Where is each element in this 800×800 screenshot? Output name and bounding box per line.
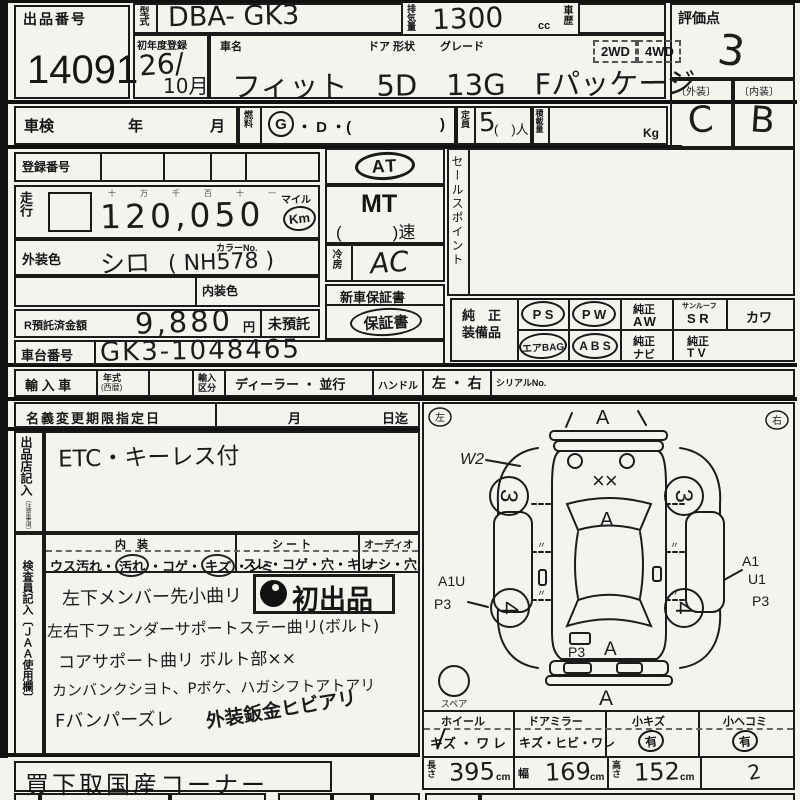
divider xyxy=(422,710,795,712)
chassis-label: 車台番号 xyxy=(21,345,73,364)
annotation-right-a1: A1 xyxy=(742,553,759,569)
divider xyxy=(224,369,226,397)
auction-sheet: 出品番号 14091 型式 DBA- GK3 排気量 1300 cc 車歴 評価… xyxy=(0,0,800,800)
model-code-label: 型式 xyxy=(137,6,147,26)
audio-condition-header: オーディオ xyxy=(364,536,413,551)
divider xyxy=(513,710,515,756)
divider xyxy=(474,106,476,145)
annotation-rear-p3: P3 xyxy=(568,644,585,660)
pw-circled: P W xyxy=(572,301,616,327)
separator xyxy=(8,397,797,401)
car-name-label: 車名 xyxy=(220,38,242,54)
inspector-note-line: Fバンパーズレ xyxy=(55,705,174,733)
first-registration-month: 10月 xyxy=(163,70,208,99)
ditto-mark: 〃 xyxy=(670,540,679,550)
mirror-damage-header: ドアミラー xyxy=(528,713,583,729)
ac-value: AC xyxy=(369,245,410,281)
spare-tire-label: スペア xyxy=(441,699,467,709)
small-dent-yes: 有 xyxy=(738,732,752,751)
divider xyxy=(422,369,424,397)
divider xyxy=(215,402,217,428)
divider xyxy=(726,298,728,329)
annotation-bottom-a: A xyxy=(599,687,613,710)
annotation-windshield-a: A xyxy=(600,509,614,531)
length-value: 395 xyxy=(449,757,496,787)
tv-label-2: T V xyxy=(687,346,706,360)
length-label: 長さ xyxy=(426,760,435,778)
annotation-left-a1u: A1U xyxy=(438,573,465,589)
partial-cell xyxy=(480,793,795,800)
auction-number: 14091 xyxy=(27,48,138,93)
capacity-label: 定員 xyxy=(460,110,469,128)
annotation-a-front: A xyxy=(596,407,610,429)
divider xyxy=(46,550,418,552)
auction-number-label: 出品番号 xyxy=(23,9,87,29)
divider xyxy=(568,298,570,362)
divider xyxy=(245,152,247,182)
name-change-until: 日迄 xyxy=(382,408,408,427)
divider xyxy=(372,369,374,397)
divider xyxy=(620,298,622,362)
color-no-value: ( NH578 ) xyxy=(168,248,275,277)
width-label: 幅 xyxy=(518,765,529,781)
sunroof-label: サンルーフ xyxy=(682,301,717,311)
shaken-year-label: 年 xyxy=(128,115,143,136)
inspector-label: 検査員記入〔ＪＡＡ使用欄〕 xyxy=(21,560,32,703)
airbag-label: エアBAG xyxy=(522,337,565,354)
serial-no-label: シリアルNo. xyxy=(496,376,546,389)
ditto-mark: 〃 xyxy=(537,540,546,550)
pw-label: P W xyxy=(582,307,606,322)
divider xyxy=(148,369,150,397)
interior-grade-label: 〔内装〕 xyxy=(739,83,779,98)
mile-unit-label: マイル xyxy=(281,191,311,206)
history-label: 車歴 xyxy=(561,5,571,25)
diagram-right-label: 右 xyxy=(772,414,782,427)
registration-label: 登録番号 xyxy=(22,158,70,175)
divider xyxy=(513,756,515,790)
divider xyxy=(192,369,194,397)
mt-label: MT xyxy=(361,190,397,219)
displacement-unit: cc xyxy=(538,20,550,32)
left-edge-bar xyxy=(0,0,8,758)
aw-label-2: AW xyxy=(633,314,658,329)
shaken-month-label: 月 xyxy=(210,115,225,136)
displacement-value: 1300 xyxy=(431,1,503,36)
annotation-rear-a: A xyxy=(604,639,617,660)
navi-label-2: ナビ xyxy=(633,346,655,362)
partial-cell xyxy=(425,793,480,800)
divider xyxy=(468,148,470,296)
sales-point-label: セールスポイント xyxy=(451,155,463,267)
small-scratch-header: 小キズ xyxy=(632,713,665,729)
annotation-right-p3: P3 xyxy=(752,593,769,609)
deposit-label: R預託済金額 xyxy=(24,317,87,333)
sr-label: S R xyxy=(687,311,709,326)
divider xyxy=(607,756,609,790)
annotation-w2: W2 xyxy=(460,451,484,468)
mileage-label: 走行 xyxy=(19,191,32,217)
width-value: 169 xyxy=(545,757,592,787)
sales-point-box xyxy=(447,148,795,296)
wheel-rear-left-grade: 4 xyxy=(496,601,523,614)
divider xyxy=(94,340,96,365)
chassis-value: GK3-1048465 xyxy=(100,334,301,368)
interior-color-label: 内装色 xyxy=(202,282,238,299)
partial-cell xyxy=(14,793,40,800)
abs-label: A B S xyxy=(579,339,611,353)
first-listing-stamp-text: 初出品 xyxy=(292,578,373,617)
inspector-note-line: コアサポート曲リ ボルト部×× xyxy=(58,644,296,673)
divider xyxy=(260,309,262,338)
4wd-label: 4WD xyxy=(645,44,674,59)
fuel-gasoline-circled: G xyxy=(268,111,294,137)
2wd-label: 2WD xyxy=(601,44,630,59)
ps-label: P S xyxy=(533,307,554,322)
height-label: 高さ xyxy=(611,760,620,778)
annotation-right-u1: U1 xyxy=(748,571,766,587)
exterior-color-label: 外装色 xyxy=(22,249,61,268)
load-unit: Kg xyxy=(643,126,659,140)
fuel-close-paren: ) xyxy=(440,116,445,133)
divider xyxy=(698,710,700,756)
diagram-left-label: 左 xyxy=(435,411,445,424)
deposit-yen: 円 xyxy=(243,318,255,335)
small-scratch-yes: 有 xyxy=(644,732,658,751)
divider xyxy=(210,152,212,182)
wheel-rear-right-grade: 4 xyxy=(670,601,697,614)
shaken-label: 車検 xyxy=(24,115,54,136)
name-change-month: 月 xyxy=(288,408,301,427)
width-unit: cm xyxy=(590,772,604,783)
seller-note-text: ETC・キーレス付 xyxy=(58,436,240,473)
divider xyxy=(490,369,492,397)
inspector-note-line: 左下メンバー先小曲リ xyxy=(62,581,242,610)
ditto-mark: 〃 xyxy=(670,588,679,598)
fuel-label: 燃料 xyxy=(243,110,252,128)
divider xyxy=(424,728,793,730)
import-year-label-2: (西暦) xyxy=(101,382,122,393)
fuel-gasoline: G xyxy=(275,116,287,133)
partial-cell xyxy=(332,793,372,800)
divider xyxy=(260,106,262,145)
cooling-label: 冷房 xyxy=(330,249,340,269)
dealer-parallel-label: ディーラー ・ 並行 xyxy=(235,374,345,393)
divider xyxy=(163,152,165,182)
seller-label: 出品店記入 xyxy=(20,436,32,496)
wheel-damage-header: ホイール xyxy=(441,713,485,729)
interior-color-box xyxy=(14,276,320,307)
ditto-mark: 〃 xyxy=(537,588,546,598)
divider xyxy=(548,106,550,145)
exterior-grade: C xyxy=(686,99,715,142)
ps-circled: P S xyxy=(521,301,565,327)
divider xyxy=(100,152,102,182)
door-shape-label: ドア 形状 xyxy=(368,38,415,54)
displacement-label: 排気量 xyxy=(406,4,415,31)
small-dent-header: 小ヘコミ xyxy=(723,713,767,729)
at-label: AT xyxy=(371,155,399,177)
divider xyxy=(700,756,702,790)
stamp-logo-dot xyxy=(272,584,279,591)
partial-cell xyxy=(278,793,332,800)
divider xyxy=(325,304,445,306)
score-label: 評価点 xyxy=(678,8,720,28)
partial-cell xyxy=(40,793,170,800)
divider xyxy=(96,369,98,397)
interior-grade: B xyxy=(749,99,777,142)
car-damage-diagram: 左 右 A W2 ×× A 3 3 4 4 A1U P3 A1 U1 P3 P3… xyxy=(424,404,793,710)
annotation-hood-xx: ×× xyxy=(592,468,618,493)
history-box xyxy=(578,3,666,34)
height-value: 152 xyxy=(634,757,681,787)
mileage-tens-box xyxy=(48,192,92,232)
name-change-label: 名義変更期限指定日 xyxy=(26,408,161,427)
divider xyxy=(672,298,674,362)
load-label: 積載量 xyxy=(535,109,543,133)
import-label: 輸 入 車 xyxy=(25,375,71,394)
wheel-front-right-grade: 3 xyxy=(669,488,697,504)
equipment-label-2: 装備品 xyxy=(462,322,501,341)
divider xyxy=(195,276,197,307)
handle-label: ハンドル xyxy=(378,377,418,392)
wheel-front-left-grade: 3 xyxy=(494,488,522,504)
divider xyxy=(351,244,353,282)
capacity-suffix: ( )人 xyxy=(494,119,529,138)
mt-speed-label: ( )速 xyxy=(336,218,415,243)
abs-circled: A B S xyxy=(572,333,618,359)
warranty-label: 保証書 xyxy=(363,310,409,333)
partial-cell xyxy=(170,793,266,800)
length-unit: cm xyxy=(496,772,510,783)
import-kubun-label-2: 区分 xyxy=(198,381,216,394)
grade-label: グレード xyxy=(440,38,484,54)
divider xyxy=(156,3,158,34)
kawa-label: カワ xyxy=(746,307,772,326)
not-deposited-label: 未預託 xyxy=(268,314,310,334)
mileage-value: 120,050 xyxy=(100,195,265,237)
model-code-value: DBA- GK3 xyxy=(168,0,300,33)
divider xyxy=(517,329,795,331)
mirror-damage-value: キズ・ヒビ・ワレ xyxy=(519,734,615,751)
seller-note-label: 〔注意事項〕 xyxy=(24,497,30,533)
annotation-left-p3: P3 xyxy=(434,596,451,612)
partial-cell xyxy=(372,793,420,800)
height-unit: cm xyxy=(680,772,694,783)
car-name-value: フィット 5D 13G Fパッケージ xyxy=(232,60,696,106)
km-unit: Km xyxy=(288,210,310,227)
left-right-label: 左 ・ 右 xyxy=(432,373,482,393)
fuel-options: ・ D ・( xyxy=(297,116,351,137)
